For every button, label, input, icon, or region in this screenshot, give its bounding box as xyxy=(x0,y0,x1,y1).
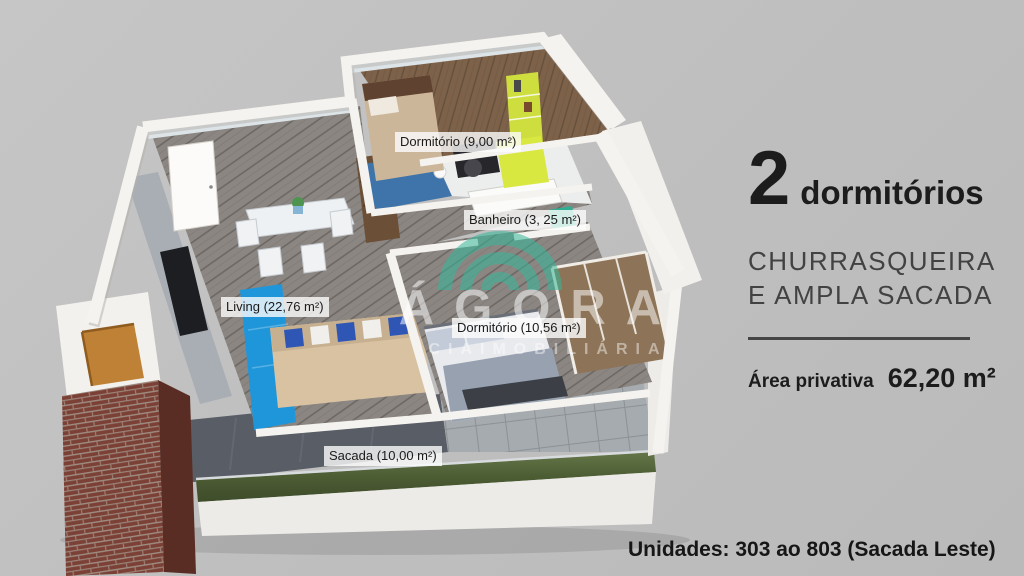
area-label: Área privativa xyxy=(748,371,874,393)
bedrooms-label: dormitórios xyxy=(800,174,983,212)
room-label-banheiro: Banheiro (3, 25 m²) xyxy=(464,210,586,230)
brick-churrasqueira xyxy=(56,292,196,576)
units-text: Unidades: 303 ao 803 (Sacada Leste) xyxy=(628,538,996,562)
divider-line xyxy=(748,337,970,340)
room-label-dormitorio-2: Dormitório (10,56 m²) xyxy=(452,318,586,338)
bedrooms-count: 2 xyxy=(748,148,788,210)
private-area-row: Área privativa 62,20 m² xyxy=(748,363,998,394)
apartment-plan-card: ÁGORA CIAIMOBILIÁRIA Dormitório (9,00 m²… xyxy=(0,0,1024,576)
bed-1 xyxy=(362,75,444,181)
area-value: 62,20 m² xyxy=(888,363,996,394)
room-label-dormitorio-1: Dormitório (9,00 m²) xyxy=(395,132,521,152)
bedrooms-row: 2 dormitórios xyxy=(748,148,998,212)
info-panel: 2 dormitórios CHURRASQUEIRA E AMPLA SACA… xyxy=(748,148,998,394)
feature-line-2: E AMPLA SACADA xyxy=(748,278,998,312)
room-label-living: Living (22,76 m²) xyxy=(221,297,329,317)
desk-chair xyxy=(464,159,482,177)
feature-line-1: CHURRASQUEIRA xyxy=(748,244,998,278)
watermark-subtitle: CIAIMOBILIÁRIA xyxy=(398,341,698,359)
features-text: CHURRASQUEIRA E AMPLA SACADA xyxy=(748,244,998,313)
room-label-sacada: Sacada (10,00 m²) xyxy=(324,446,442,466)
